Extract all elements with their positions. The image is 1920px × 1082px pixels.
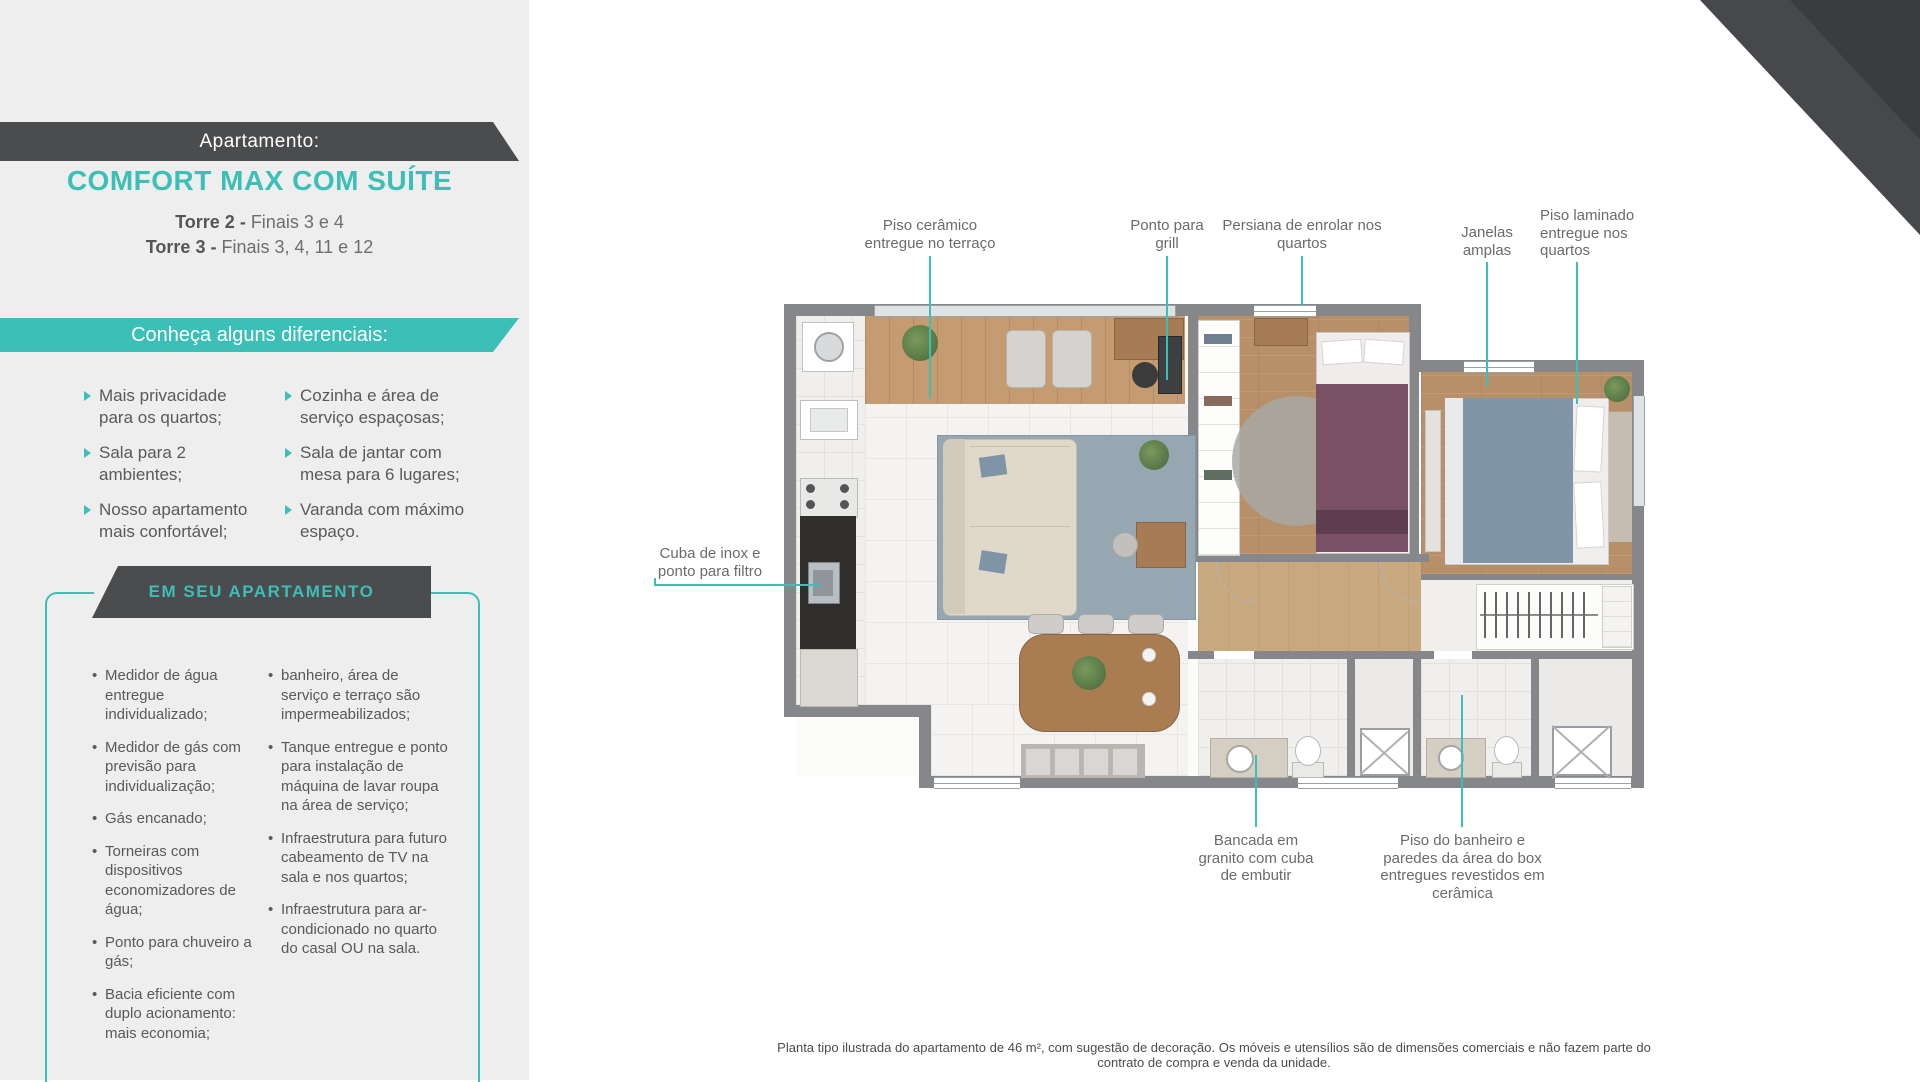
teal-bracket-left [45, 592, 94, 1082]
door-gap [1214, 651, 1254, 659]
table-plant [1072, 656, 1106, 690]
washer-door [814, 332, 844, 362]
amenities-column-1: Medidor de água entregue individualizado… [92, 666, 262, 1056]
terrace-window [874, 305, 1176, 317]
leader-line [929, 256, 931, 398]
burner [840, 500, 849, 509]
amenities-column-2: banheiro, área de serviço e terraço são … [268, 666, 450, 972]
leader-line [654, 584, 820, 586]
diferencial-item: Mais privacidade para os quartos; [84, 385, 254, 429]
pillow [1573, 405, 1604, 472]
suite-window [1464, 361, 1534, 373]
pillow [1321, 339, 1363, 366]
burner [806, 500, 815, 509]
closet-clothes [1204, 396, 1232, 406]
desk-chair [1132, 362, 1158, 388]
bed2-sheet-fold [1445, 398, 1463, 563]
plant [1139, 440, 1169, 470]
callout-piso-laminado: Piso laminado entregue nos quartos [1540, 207, 1650, 260]
plant [902, 325, 938, 361]
wall [1413, 659, 1421, 776]
wall [1188, 651, 1644, 659]
tower-line: Torre 2 - Finais 3 e 4 [0, 210, 519, 235]
callout-piso-banheiro: Piso do banheiro e paredes da área do bo… [1375, 832, 1550, 902]
desk-chair [1112, 532, 1138, 558]
amenity-item: Bacia eficiente com duplo acionamento: m… [92, 985, 262, 1044]
diferenciais-title: Conheça alguns diferenciais: [131, 324, 388, 346]
wall [784, 304, 796, 717]
dining-chair [1078, 614, 1114, 634]
tower-prefix: Torre 3 - [146, 237, 222, 257]
bench-cushion [1112, 748, 1138, 776]
burner [840, 484, 849, 493]
shower-box [1360, 728, 1410, 776]
bedroom1-window [1254, 305, 1316, 317]
callout-persiana: Persiana de enrolar nos quartos [1222, 217, 1382, 252]
bath-window [1555, 777, 1631, 789]
plant [1604, 376, 1630, 402]
tower-value: Finais 3, 4, 11 e 12 [221, 237, 373, 257]
toilet-bowl [1295, 736, 1321, 766]
closet-clothes [1204, 470, 1232, 480]
lounge-chair [1006, 330, 1046, 388]
side-desk [1136, 522, 1186, 568]
laundry-basin [810, 408, 848, 432]
diferencial-item: Nosso apartamento mais confortável; [84, 499, 254, 543]
sofa-pillow [979, 550, 1008, 574]
diferenciais-ribbon: Conheça alguns diferenciais: [0, 318, 519, 352]
plate [1142, 692, 1156, 706]
leader-line [1576, 262, 1578, 404]
leader-line [1166, 256, 1168, 380]
apartment-label: Apartamento: [199, 131, 319, 152]
lounge-chair [1052, 330, 1092, 388]
dresser [1254, 318, 1308, 346]
bench-cushion [1025, 748, 1051, 776]
amenity-item: Infraestrutura para ar-condicionado no q… [268, 900, 450, 959]
leader-line [1461, 695, 1463, 827]
diferencial-item: Cozinha e área de serviço espaçosas; [285, 385, 465, 429]
bench-cushion [1083, 748, 1109, 776]
bed-bench [1425, 410, 1441, 552]
em-seu-apartamento-title: EM SEU APARTAMENTO [149, 582, 375, 601]
wall [1409, 372, 1419, 562]
living-window [934, 777, 1020, 789]
plate [1142, 648, 1156, 662]
pillow [1573, 481, 1604, 548]
basin [1226, 745, 1254, 773]
callout-ponto-grill: Ponto para grill [1122, 217, 1212, 252]
tower-info: Torre 2 - Finais 3 e 4 Torre 3 - Finais … [0, 210, 519, 260]
floor-plan [784, 300, 1647, 788]
wall [1421, 574, 1632, 580]
diferencial-item: Varanda com máximo espaço. [285, 499, 465, 543]
burner [806, 484, 815, 493]
shower-box [1552, 726, 1612, 776]
amenity-item: Infraestrutura para futuro cabeamento de… [268, 829, 450, 888]
apartment-name: COMFORT MAX COM SUÍTE [0, 165, 519, 197]
tower-line: Torre 3 - Finais 3, 4, 11 e 12 [0, 235, 519, 260]
dining-chair [1128, 614, 1164, 634]
amenity-item: Medidor de água entregue individualizado… [92, 666, 262, 725]
kitchen-cabinet [800, 649, 858, 707]
leader-line [1255, 755, 1257, 827]
amenity-item: Tanque entregue e ponto para instalação … [268, 738, 450, 816]
diferenciais-column-1: Mais privacidade para os quartos; Sala p… [84, 385, 254, 556]
toilet-bowl [1494, 736, 1519, 765]
diferenciais-column-2: Cozinha e área de serviço espaçosas; Sal… [285, 385, 465, 556]
diferencial-item: Sala de jantar com mesa para 6 lugares; [285, 442, 465, 486]
callout-cuba-inox: Cuba de inox e ponto para filtro [650, 545, 770, 580]
callout-bancada: Bancada em granito com cuba de embutir [1191, 832, 1321, 885]
wardrobe-shelves [1602, 586, 1632, 648]
sofa-seam [970, 446, 1070, 447]
sofa-backrest [943, 439, 965, 614]
sofa-seam [970, 526, 1070, 527]
leader-line [1301, 256, 1303, 306]
bench-cushion [1054, 748, 1080, 776]
tower-value: Finais 3 e 4 [251, 212, 344, 232]
callout-janelas: Janelas amplas [1442, 224, 1532, 259]
open-closet [1198, 320, 1240, 556]
suite-side-window [1633, 396, 1645, 506]
leader-line [1486, 262, 1488, 386]
kitchen-sink-basin [813, 570, 833, 596]
apartment-label-ribbon: Apartamento: [0, 122, 519, 161]
wall [1347, 659, 1355, 776]
amenity-item: banheiro, área de serviço e terraço são … [268, 666, 450, 725]
bed2-blanket [1445, 398, 1573, 563]
amenity-item: Torneiras com dispositivos economizadore… [92, 842, 262, 920]
pillow [1363, 339, 1405, 366]
diferencial-item: Sala para 2 ambientes; [84, 442, 254, 486]
em-seu-apartamento-ribbon: EM SEU APARTAMENTO [92, 566, 431, 618]
bed1-throw [1316, 510, 1408, 534]
amenity-item: Medidor de gás com previsão para individ… [92, 738, 262, 797]
callout-piso-ceramico: Piso cerâmico entregue no terraço [855, 217, 1005, 252]
wall [1531, 659, 1539, 776]
dining-chair [1028, 614, 1064, 634]
bath-window [1298, 777, 1398, 789]
sofa-pillow [979, 454, 1008, 477]
closet-clothes [1204, 334, 1232, 344]
hangers [1484, 592, 1594, 638]
disclaimer: Planta tipo ilustrada do apartamento de … [764, 1040, 1664, 1070]
door-gap [1434, 651, 1472, 659]
tower-prefix: Torre 2 - [175, 212, 251, 232]
amenity-item: Gás encanado; [92, 809, 262, 829]
amenity-item: Ponto para chuveiro a gás; [92, 933, 262, 972]
grill [1158, 336, 1182, 394]
